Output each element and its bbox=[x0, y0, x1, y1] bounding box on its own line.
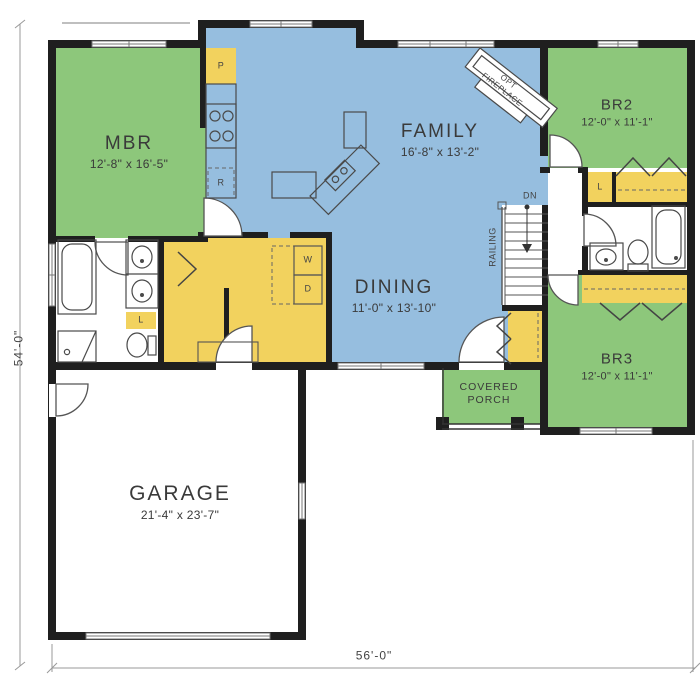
mbr-label: MBR 12'-8" x 16'-5" bbox=[90, 132, 168, 172]
br3-label: BR3 12'-0" x 11'-1" bbox=[581, 350, 652, 384]
vanity2 bbox=[590, 243, 623, 270]
br2-closet-doors2 bbox=[652, 158, 686, 176]
family-size: 16'-8" x 13'-2" bbox=[401, 145, 479, 160]
hall-bath-door bbox=[584, 214, 616, 246]
kitchen-fixtures bbox=[206, 84, 379, 214]
pantry-label: P bbox=[218, 60, 225, 71]
family-label: FAMILY 16'-8" x 13'-2" bbox=[401, 120, 479, 160]
stairs bbox=[498, 202, 548, 305]
porch-label: COVERED PORCH bbox=[453, 381, 525, 407]
master-bath-door bbox=[95, 242, 128, 275]
down-arrow bbox=[522, 205, 532, 253]
range bbox=[206, 104, 236, 148]
garage-window bbox=[299, 483, 305, 519]
family-name: FAMILY bbox=[401, 120, 479, 144]
tub bbox=[58, 240, 96, 314]
height-dimension: 54'-0" bbox=[12, 330, 27, 367]
garage-size: 21'-4" x 23'-7" bbox=[129, 508, 231, 523]
br3-door bbox=[548, 275, 578, 305]
br2-size: 12'-0" x 11'-1" bbox=[581, 116, 652, 130]
dining-size: 11'-0" x 13'-10" bbox=[352, 301, 436, 316]
br2-name: BR2 bbox=[581, 96, 652, 115]
laundry-garage-door bbox=[216, 326, 252, 362]
br2-closet-doors bbox=[616, 158, 650, 176]
br3-closet-doors2 bbox=[642, 303, 682, 320]
island-sink bbox=[325, 160, 355, 190]
front-door bbox=[459, 317, 504, 362]
mbr-size: 12'-8" x 16'-5" bbox=[90, 157, 168, 172]
br3-window bbox=[580, 428, 652, 434]
dining-window bbox=[338, 363, 424, 369]
refrigerator-label: R bbox=[218, 177, 225, 188]
door-swings bbox=[56, 135, 616, 416]
washer-label: W bbox=[304, 254, 313, 265]
br3-size: 12'-0" x 11'-1" bbox=[581, 370, 652, 384]
garage-side-door bbox=[56, 384, 88, 416]
garage-name: GARAGE bbox=[129, 481, 231, 507]
floor-plan: MBR 12'-8" x 16'-5" FAMILY 16'-8" x 13'-… bbox=[0, 0, 700, 700]
kitchen-window bbox=[250, 21, 312, 27]
family-window bbox=[398, 41, 494, 47]
garage-door bbox=[86, 633, 270, 639]
porch-name: COVERED PORCH bbox=[453, 381, 525, 407]
width-dimension: 56'-0" bbox=[356, 649, 393, 664]
mbr-window bbox=[92, 41, 166, 47]
hall-linen-label: L bbox=[597, 181, 603, 192]
shower bbox=[58, 331, 96, 362]
railing-label: RAILING bbox=[487, 227, 498, 267]
toilet bbox=[127, 333, 156, 357]
br3-closet-doors bbox=[600, 303, 640, 320]
br2-label: BR2 12'-0" x 11'-1" bbox=[581, 96, 652, 130]
br2-window bbox=[598, 41, 638, 47]
laundry-closet-door bbox=[178, 252, 196, 286]
closet-bifold-doors bbox=[178, 158, 686, 364]
windows bbox=[49, 21, 652, 639]
master-bath-window bbox=[49, 244, 55, 306]
mbr-name: MBR bbox=[90, 132, 168, 156]
tub2 bbox=[652, 206, 685, 268]
island-counter-a bbox=[272, 172, 316, 198]
down-label: DN bbox=[523, 190, 537, 201]
br2-door bbox=[550, 135, 582, 167]
door-openings bbox=[49, 363, 504, 417]
toilet2 bbox=[628, 240, 648, 271]
dining-label: DINING 11'-0" x 13'-10" bbox=[352, 276, 436, 316]
dining-name: DINING bbox=[352, 276, 436, 300]
br3-name: BR3 bbox=[581, 350, 652, 369]
dryer-label: D bbox=[305, 283, 312, 294]
mbr-door bbox=[204, 198, 242, 236]
master-linen-label: L bbox=[138, 314, 144, 325]
island-counter-b bbox=[310, 145, 379, 214]
island-counter-c bbox=[344, 112, 366, 148]
garage-label: GARAGE 21'-4" x 23'-7" bbox=[129, 481, 231, 523]
